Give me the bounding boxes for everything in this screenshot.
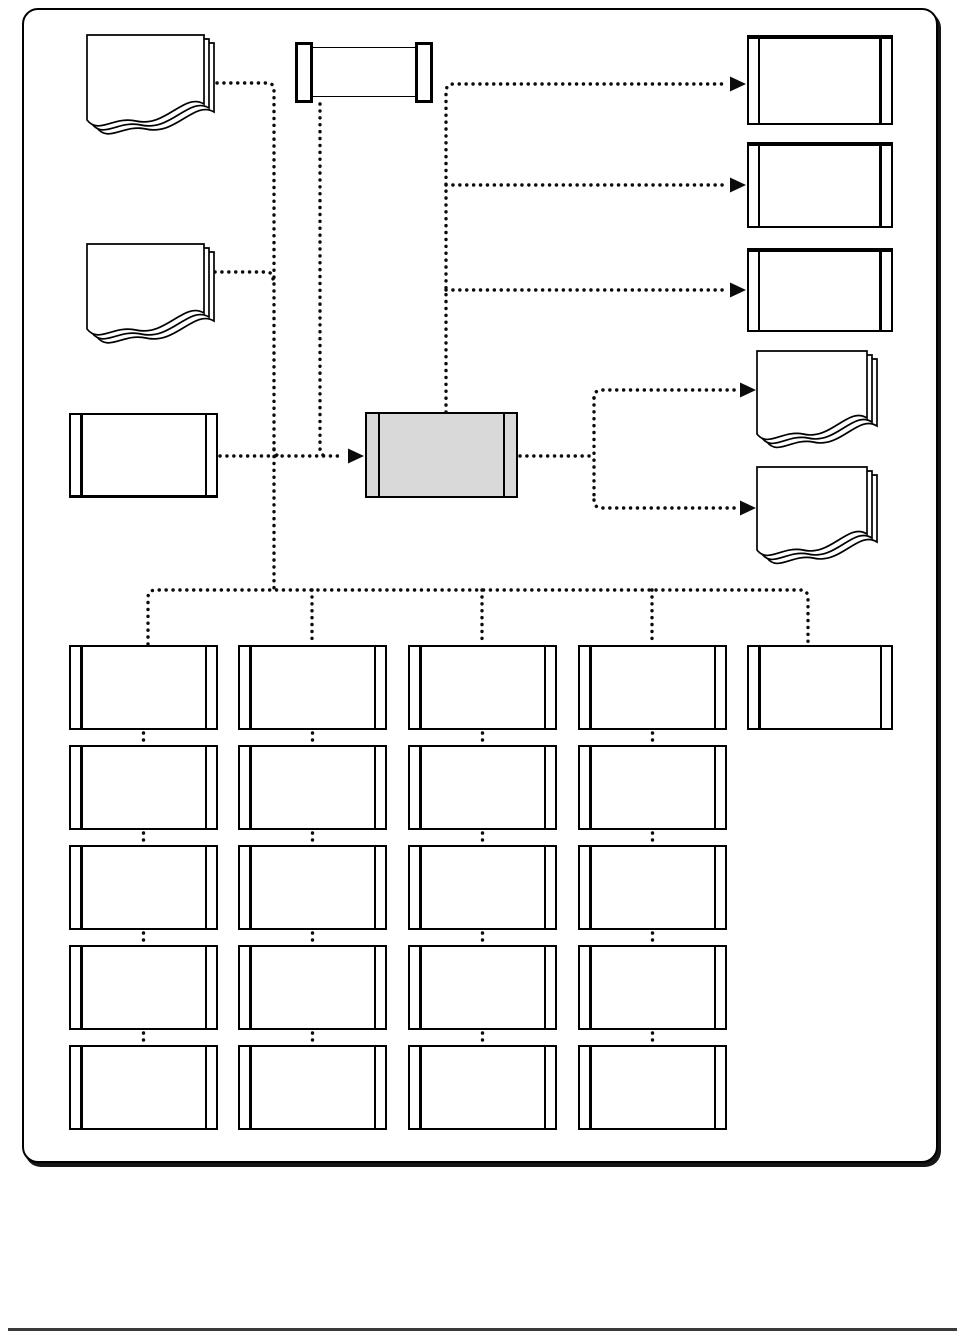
footer-rule [8, 1328, 957, 1331]
grid-process-box-c4-r3 [578, 845, 727, 930]
grid-process-box-c3-r4 [408, 945, 557, 1030]
grid-process-box-c1-r5 [69, 1045, 218, 1130]
grid-process-box-c4-r2 [578, 745, 727, 830]
main-process-box [365, 412, 518, 498]
output-box-1 [747, 35, 893, 125]
output-box-2 [747, 142, 893, 228]
input-document-middle-multidoc-shape [86, 243, 220, 347]
tape-shape [295, 42, 433, 103]
tape-left-cap [295, 42, 313, 103]
output-box-3 [747, 248, 893, 332]
output-document-1-multidoc-shape [756, 350, 884, 452]
grid-process-box-c3-r2 [408, 745, 557, 830]
grid-process-box-c1-r2 [69, 745, 218, 830]
grid-process-box-c3-r3 [408, 845, 557, 930]
grid-process-box-c3-r1 [408, 645, 557, 730]
grid-process-box-c1-r1 [69, 645, 218, 730]
grid-process-box-c2-r4 [238, 945, 387, 1030]
grid-process-box-c4-r1 [578, 645, 727, 730]
grid-process-box-c3-r5 [408, 1045, 557, 1130]
grid-process-box-c2-r2 [238, 745, 387, 830]
input-document-top-multidoc-shape [86, 34, 220, 138]
grid-process-box-c4-r4 [578, 945, 727, 1030]
grid-process-box-c1-r4 [69, 945, 218, 1030]
input-process-box [69, 413, 218, 498]
grid-process-box-c1-r3 [69, 845, 218, 930]
tape-right-cap [415, 42, 433, 103]
output-document-2-multidoc-shape [756, 466, 884, 568]
document-page [0, 0, 965, 1339]
tape-body [304, 47, 424, 97]
grid-process-box-c2-r3 [238, 845, 387, 930]
grid-process-box-c2-r1 [238, 645, 387, 730]
grid-process-box-c2-r5 [238, 1045, 387, 1130]
grid-process-box-c4-r5 [578, 1045, 727, 1130]
grid-process-box-c5-r1 [747, 645, 893, 730]
